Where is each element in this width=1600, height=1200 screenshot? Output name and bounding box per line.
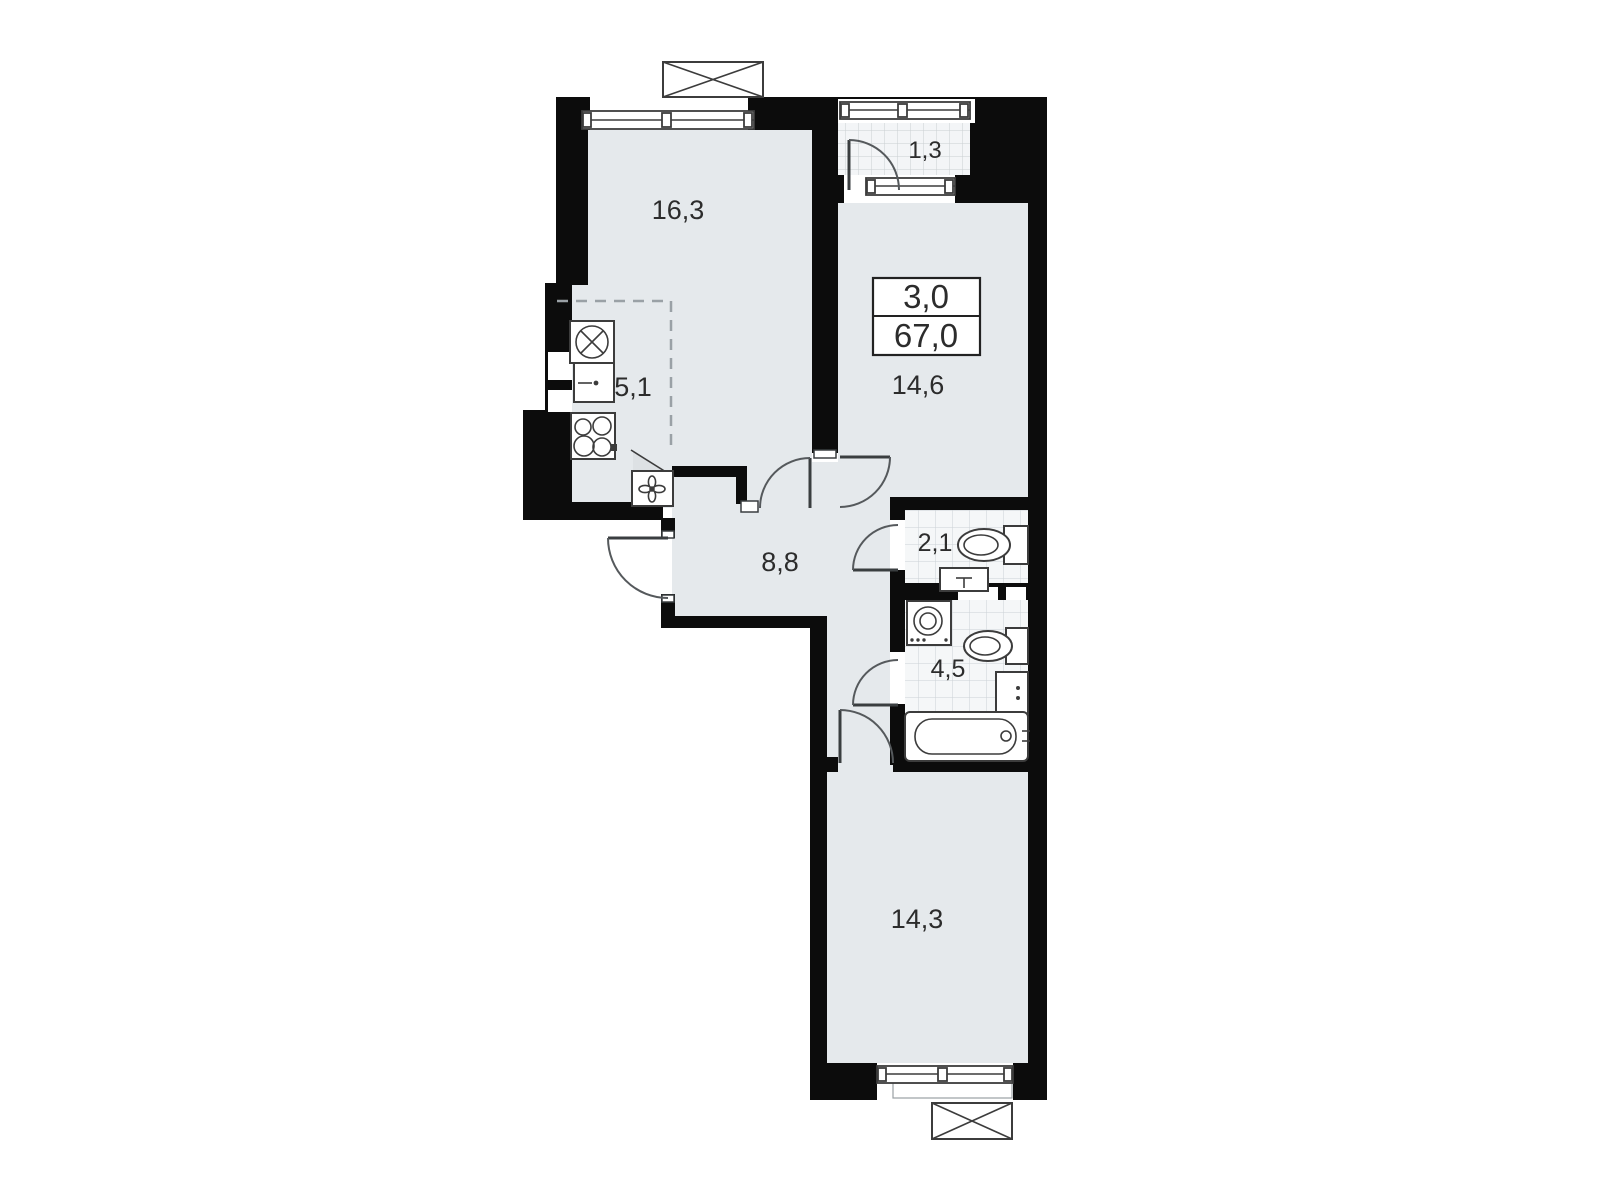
kitchen-area-label: 5,1 <box>614 372 652 402</box>
window-icon <box>866 178 955 195</box>
corridor-nook-floor <box>827 628 890 760</box>
stove-icon <box>571 413 617 459</box>
window-icon <box>877 1066 1013 1098</box>
window-icon <box>840 102 970 119</box>
wash-basin-icon <box>940 568 988 591</box>
wall-niche <box>548 352 572 380</box>
toilet-icon <box>964 628 1028 664</box>
washing-machine-icon <box>907 601 951 645</box>
air-conditioner-icon <box>663 62 763 97</box>
total-area-value: 67,0 <box>894 317 958 354</box>
entrance-door-swing-icon <box>608 531 674 602</box>
wall-niche <box>548 390 572 412</box>
hallway-area-label: 8,8 <box>761 547 799 577</box>
bedroom-1-area-label: 14,6 <box>892 370 945 400</box>
refrigerator-icon <box>574 363 614 402</box>
air-conditioner-icon <box>932 1103 1012 1139</box>
toilet-icon <box>958 526 1028 564</box>
wash-basin-icon <box>996 672 1028 714</box>
living-room-area-label: 16,3 <box>652 195 705 225</box>
duct-shaft-icon <box>1006 587 1026 600</box>
kitchen-sink-icon <box>570 321 614 363</box>
bathtub-icon <box>905 712 1030 761</box>
window-icon <box>582 111 754 129</box>
rooms-count-value: 3,0 <box>903 278 949 315</box>
balcony-area-label: 1,3 <box>908 137 941 164</box>
info-box: 3,0 67,0 <box>873 278 980 355</box>
floor-plan: 16,3 5,1 14,6 1,3 8,8 2,1 4,5 14,3 3,0 6… <box>0 0 1600 1200</box>
floor-plan-page: 16,3 5,1 14,6 1,3 8,8 2,1 4,5 14,3 3,0 6… <box>0 0 1600 1200</box>
bathroom-area-label: 4,5 <box>931 655 966 683</box>
bedroom-2-area-label: 14,3 <box>891 904 944 934</box>
wc-area-label: 2,1 <box>918 529 953 557</box>
